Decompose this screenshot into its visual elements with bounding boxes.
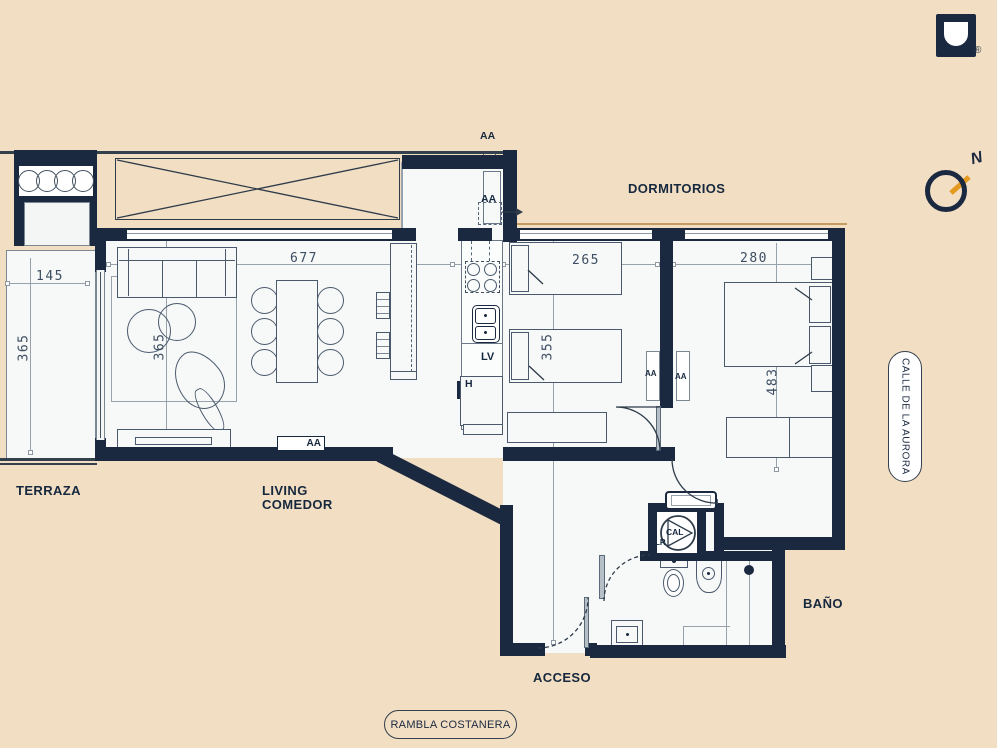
- burner: [484, 279, 497, 292]
- stool: [376, 292, 390, 319]
- h-tag: H: [465, 378, 473, 390]
- bedroom1-window: [520, 228, 652, 241]
- bano-label: BAÑO: [803, 596, 843, 611]
- pillow: [511, 332, 529, 380]
- street-pill-rambla: RAMBLA COSTANERA: [384, 710, 517, 739]
- shower-head-icon: [744, 565, 754, 575]
- pillow: [809, 326, 831, 364]
- terrace-slider-rail: [100, 272, 101, 438]
- dining-chair: [251, 349, 278, 376]
- closet-right-wall: [714, 503, 724, 555]
- entry-door-leaf: [584, 597, 589, 648]
- appliance-cap: [463, 424, 503, 435]
- aa-box-living: AA: [277, 436, 325, 451]
- wall-access-left: [500, 505, 513, 655]
- floorplan-page: { "brand": {"registered": "®"}, "compass…: [0, 0, 997, 748]
- burner: [484, 263, 497, 276]
- wall-right: [832, 238, 845, 548]
- dormitorios-label: DORMITORIOS: [628, 181, 725, 196]
- terrace-label: TERRAZA: [16, 483, 81, 498]
- vent-arrow-head: [516, 208, 523, 216]
- bench: [726, 417, 833, 458]
- sofa: [117, 247, 237, 298]
- wall-bath-right: [772, 545, 785, 657]
- living-label-line2: COMEDOR: [262, 498, 333, 512]
- pillow: [511, 245, 529, 292]
- nightstand: [811, 365, 833, 392]
- dim-bedroom1-width: 265: [558, 253, 614, 268]
- dresser: [507, 412, 607, 443]
- condenser-fan-icon: [72, 170, 94, 192]
- burner: [467, 263, 480, 276]
- pillow: [809, 286, 831, 323]
- terrace-edge-line-2: [0, 463, 97, 465]
- wall-access-bottom: [500, 643, 545, 656]
- dining-chair: [317, 318, 344, 345]
- tv-console-slot: [135, 437, 212, 445]
- dim-living-width: 677: [276, 251, 332, 266]
- bedroom2-window: [685, 228, 830, 241]
- aa-tag-strip2: AA: [675, 372, 687, 381]
- compass-ring-icon: [925, 170, 967, 212]
- dining-chair: [317, 287, 344, 314]
- toilet-bowl-inner: [667, 574, 680, 592]
- living-label: LIVING COMEDOR: [262, 484, 333, 511]
- living-window: [127, 228, 392, 241]
- aa-tag-strip1: AA: [645, 369, 657, 378]
- pergola-box: [115, 158, 400, 220]
- closet-left-wall: [648, 503, 657, 555]
- kitchen-nook-left-line: [401, 162, 403, 238]
- bathroom-door-leaf: [599, 555, 605, 599]
- street-calle-label: CALLE DE LA AURORA: [900, 358, 911, 475]
- compass-north-label: N: [969, 149, 985, 169]
- registered-mark: ®: [974, 45, 981, 56]
- aa-box-living-label: AA: [307, 438, 321, 449]
- bedroom1-door-leaf: [656, 406, 661, 451]
- brand-logo-shield: [944, 22, 968, 46]
- dining-table: [276, 280, 318, 383]
- wall-living-bottom: [95, 447, 393, 461]
- wall-between-bedrooms: [660, 238, 673, 408]
- hall-sink-basin: [671, 495, 711, 506]
- dim-bedroom1-height: 355: [541, 327, 556, 367]
- condenser-box: [19, 166, 93, 196]
- terrace-edge-line-1: [0, 458, 97, 461]
- wall-diagonal: [377, 449, 508, 525]
- street-pill-calle: CALLE DE LA AURORA: [888, 351, 922, 482]
- dim-terrace-height: 365: [17, 328, 32, 368]
- cal-tag: CAL: [666, 527, 683, 537]
- kitchen-nook-top-wall: [402, 155, 503, 169]
- dim-bedroom2-width: 280: [726, 251, 782, 266]
- living-label-line1: LIVING: [262, 484, 333, 498]
- closet-divider-wall: [697, 509, 706, 555]
- nightstand: [811, 257, 833, 280]
- acceso-label: ACCESO: [533, 670, 591, 685]
- aa-tag-nook: AA: [481, 193, 496, 205]
- dining-chair: [251, 318, 278, 345]
- kitchen-island-cap: [390, 371, 417, 380]
- street-rambla-label: RAMBLA COSTANERA: [390, 719, 510, 731]
- sill-line-bedrooms: [517, 223, 847, 225]
- lr-tag: LR: [655, 538, 666, 547]
- wall-between-doors-stub: [660, 449, 673, 461]
- duct-dashed: [478, 202, 502, 225]
- kitchen-nook-right-wall: [503, 150, 517, 242]
- shower-divider: [726, 555, 727, 645]
- burner: [467, 279, 480, 292]
- dim-bedroom2-height: 483: [766, 360, 781, 404]
- wall-bed1-bottom: [503, 447, 675, 461]
- wall-bed2-bottom: [716, 537, 845, 550]
- terrace-block-opening: [24, 202, 90, 246]
- lv-tag: LV: [481, 351, 494, 363]
- dining-chair: [317, 349, 344, 376]
- dining-chair: [251, 287, 278, 314]
- wall-stub-b: [458, 228, 492, 241]
- dim-living-height: 365: [153, 327, 168, 367]
- dim-terrace-width: 145: [22, 269, 78, 284]
- aa-tag-top: AA: [480, 130, 495, 142]
- stool: [376, 332, 390, 359]
- wall-bath-bottom: [590, 645, 786, 658]
- kitchen-island: [390, 243, 417, 374]
- wall-stub-a: [392, 228, 416, 241]
